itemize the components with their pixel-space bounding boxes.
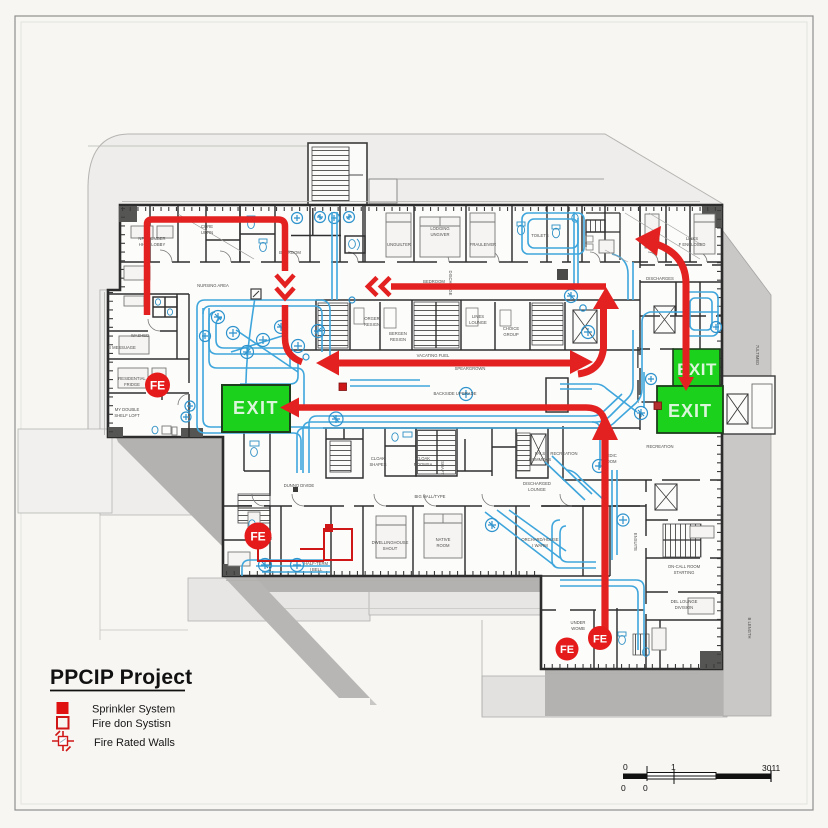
- svg-text:LINKS: LINKS: [686, 236, 698, 241]
- svg-text:ON-CALL ROOM: ON-CALL ROOM: [668, 564, 701, 569]
- svg-text:UNGUILTER: UNGUILTER: [387, 242, 411, 247]
- svg-text:DUNNO DIVIDE: DUNNO DIVIDE: [284, 483, 315, 488]
- svg-text:PPCIP Project: PPCIP Project: [50, 666, 192, 689]
- svg-text:LOUNGE: LOUNGE: [469, 320, 487, 325]
- svg-text:I BELL: I BELL: [310, 567, 323, 572]
- svg-text:CLOAK: CLOAK: [416, 456, 430, 461]
- svg-text:TOILETS: TOILETS: [531, 233, 549, 238]
- svg-text:NPP LUMBER: NPP LUMBER: [138, 236, 165, 241]
- svg-text:WASHED: WASHED: [131, 333, 149, 338]
- svg-text:FE: FE: [593, 634, 607, 646]
- svg-text:CHOICE: CHOICE: [503, 326, 519, 331]
- svg-text:Fire don Systisn: Fire don Systisn: [92, 718, 171, 730]
- svg-text:LOUNGE: LOUNGE: [528, 487, 546, 492]
- svg-text:I WARM: I WARM: [532, 543, 548, 548]
- svg-text:COMMONS: COMMONS: [529, 457, 552, 462]
- svg-text:FE: FE: [250, 530, 265, 544]
- svg-text:DIVISION: DIVISION: [675, 605, 693, 610]
- svg-text:FRAULEIVER: FRAULEIVER: [470, 242, 496, 247]
- svg-text:ROOMSA: ROOMSA: [414, 462, 433, 467]
- svg-text:RESIGN: RESIGN: [390, 337, 406, 342]
- svg-text:ORGER: ORGER: [364, 316, 379, 321]
- svg-text:MY DOUBLE: MY DOUBLE: [115, 407, 140, 412]
- svg-text:SHAFT: SHAFT: [440, 461, 445, 475]
- svg-text:ENSUITE: ENSUITE: [633, 533, 638, 551]
- svg-text:B LENGTH: B LENGTH: [747, 618, 752, 639]
- svg-text:SHOUT: SHOUT: [383, 546, 398, 551]
- svg-text:LINES: LINES: [472, 314, 484, 319]
- svg-text:ROOM: ROOM: [436, 543, 450, 548]
- svg-text:STARTING: STARTING: [674, 570, 695, 575]
- svg-text:0: 0: [621, 783, 626, 793]
- svg-text:VACATING FUEL: VACATING FUEL: [417, 353, 450, 358]
- svg-text:RECREATION: RECREATION: [646, 444, 673, 449]
- svg-text:GROUP: GROUP: [503, 332, 519, 337]
- svg-text:F ENCLOSED: F ENCLOSED: [679, 242, 706, 247]
- svg-text:CLOAK: CLOAK: [371, 456, 385, 461]
- svg-text:0: 0: [643, 783, 648, 793]
- svg-text:EXIT: EXIT: [668, 401, 712, 421]
- svg-text:BIG HALL/TYPE: BIG HALL/TYPE: [415, 494, 446, 499]
- svg-text:0: 0: [623, 762, 628, 772]
- svg-text:BACKSIDE UPGRADE: BACKSIDE UPGRADE: [433, 391, 476, 396]
- svg-text:EXIT: EXIT: [233, 398, 279, 418]
- svg-text:DEL LOUNGE: DEL LOUNGE: [671, 599, 698, 604]
- svg-text:B MESSUAGE: B MESSUAGE: [108, 345, 136, 350]
- svg-text:FRIDGE: FRIDGE: [124, 382, 140, 387]
- svg-text:DISCHARGED: DISCHARGED: [523, 481, 551, 486]
- svg-text:FE: FE: [560, 644, 574, 656]
- svg-text:RESIDENTIAL: RESIDENTIAL: [118, 376, 146, 381]
- svg-text:Fire Rated Walls: Fire Rated Walls: [94, 737, 175, 749]
- svg-text:SPEARGROWN: SPEARGROWN: [455, 366, 486, 371]
- svg-text:FE: FE: [150, 379, 165, 393]
- svg-text:HHTB LOBBY: HHTB LOBBY: [139, 242, 166, 247]
- svg-text:RESIGN: RESIGN: [364, 322, 380, 327]
- svg-text:LODGING: LODGING: [430, 226, 449, 231]
- svg-text:CORE: CORE: [201, 224, 213, 229]
- svg-text:ORCHARD/HOUSE: ORCHARD/HOUSE: [521, 537, 558, 542]
- svg-text:WOMB: WOMB: [571, 626, 585, 631]
- svg-text:BERGEN: BERGEN: [389, 331, 407, 336]
- svg-text:NURSING AREA: NURSING AREA: [197, 283, 229, 288]
- svg-text:SHAPES: SHAPES: [370, 462, 387, 467]
- svg-text:Sprinkler System: Sprinkler System: [92, 704, 175, 716]
- svg-text:UNGIVER: UNGIVER: [430, 232, 449, 237]
- svg-text:PALS: PALS: [535, 451, 546, 456]
- svg-text:NATIVE: NATIVE: [436, 537, 451, 542]
- svg-text:RECREATION: RECREATION: [550, 451, 577, 456]
- svg-text:UORN: UORN: [201, 230, 213, 235]
- svg-text:DISCHARGE: DISCHARGE: [448, 271, 453, 296]
- svg-text:DWELLINGHOUSE: DWELLINGHOUSE: [372, 540, 409, 545]
- svg-text:7ULTIMED: 7ULTIMED: [755, 345, 760, 365]
- svg-text:SHELF LOFT: SHELF LOFT: [114, 413, 140, 418]
- svg-text:UNDER: UNDER: [571, 620, 586, 625]
- svg-text:DISCHARGES: DISCHARGES: [646, 276, 674, 281]
